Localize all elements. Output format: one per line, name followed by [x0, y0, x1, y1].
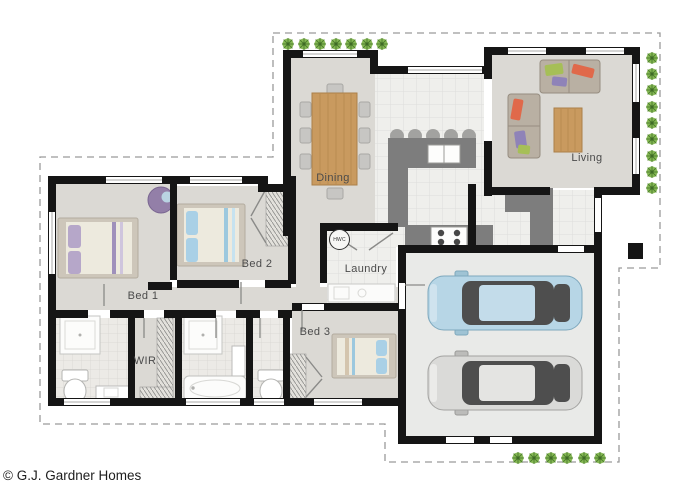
bathtub — [184, 376, 246, 401]
room-label-dining: Dining — [316, 172, 350, 184]
bed2 — [177, 204, 245, 266]
room-label-wir: WIR — [134, 355, 157, 367]
porch-post — [628, 243, 643, 259]
floor-plan-drawing — [0, 0, 700, 500]
floor-plan: Dining Living Bed 1 Bed 2 Bed 3 Laundry … — [0, 0, 700, 500]
room-label-bed2: Bed 2 — [242, 258, 273, 270]
living-sofa-top — [540, 60, 600, 93]
room-label-laundry: Laundry — [345, 263, 388, 275]
bed3 — [332, 334, 396, 378]
laundry-bench — [328, 284, 395, 302]
bathroom-vanity — [232, 346, 245, 376]
car-blue — [428, 271, 582, 335]
room-label-living: Living — [571, 152, 602, 164]
coffee-table — [554, 108, 582, 152]
hot-water-cylinder-symbol: HWC — [329, 229, 350, 250]
ensuite-shower — [60, 316, 100, 354]
room-label-bed1: Bed 1 — [128, 290, 159, 302]
copyright-text: © G.J. Gardner Homes — [3, 468, 141, 483]
car-silver — [428, 351, 582, 415]
living-sofa-left — [508, 94, 540, 158]
room-label-bed3: Bed 3 — [300, 326, 331, 338]
bed1 — [58, 218, 138, 278]
